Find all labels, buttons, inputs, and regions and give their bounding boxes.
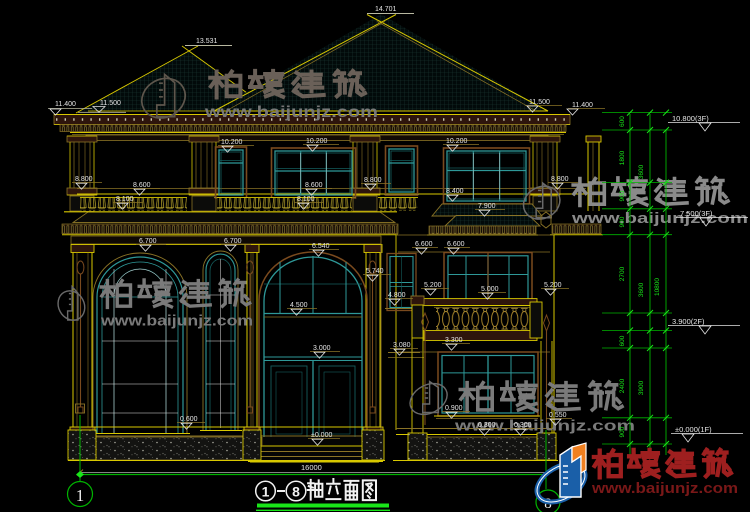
- svg-text:www.baijunjz.com: www.baijunjz.com: [591, 480, 738, 497]
- svg-text:900: 900: [619, 216, 626, 227]
- svg-text:11.400: 11.400: [55, 101, 76, 108]
- svg-text:900: 900: [619, 190, 626, 201]
- svg-text:8: 8: [292, 484, 300, 500]
- svg-text:8.600: 8.600: [305, 182, 323, 189]
- svg-text:2400: 2400: [619, 378, 626, 393]
- svg-text:5.200: 5.200: [544, 282, 562, 289]
- svg-text:13.531: 13.531: [196, 38, 218, 45]
- svg-text:6.600: 6.600: [447, 241, 465, 248]
- svg-text:600: 600: [619, 335, 626, 346]
- svg-text:600: 600: [619, 116, 626, 127]
- svg-text:8.600: 8.600: [133, 182, 151, 189]
- svg-text:3.300: 3.300: [445, 337, 463, 344]
- svg-text:0.300: 0.300: [478, 422, 496, 429]
- svg-text:www.baijunjz.com: www.baijunjz.com: [571, 210, 748, 227]
- svg-text:6.700: 6.700: [139, 238, 157, 245]
- svg-text:10.200: 10.200: [446, 138, 468, 145]
- svg-text:3.900(2F): 3.900(2F): [672, 317, 705, 326]
- svg-text:±0.000: ±0.000: [311, 432, 332, 439]
- svg-text:8.400: 8.400: [446, 188, 464, 195]
- svg-text:1800: 1800: [619, 150, 626, 165]
- svg-text:www.baijunjz.com: www.baijunjz.com: [100, 314, 253, 330]
- svg-text:1: 1: [262, 484, 270, 500]
- svg-text:7.500(3F): 7.500(3F): [680, 209, 713, 218]
- svg-text:10800: 10800: [654, 278, 661, 296]
- svg-text:1: 1: [76, 486, 85, 505]
- svg-text:6.540: 6.540: [312, 243, 330, 250]
- svg-text:0.300: 0.300: [514, 422, 532, 429]
- svg-text:www.baijunjz.com: www.baijunjz.com: [204, 104, 378, 121]
- svg-text:2700: 2700: [619, 266, 626, 281]
- svg-text:8.800: 8.800: [364, 177, 382, 184]
- svg-text:5.000: 5.000: [481, 286, 499, 293]
- svg-text:6.600: 6.600: [415, 241, 433, 248]
- svg-text:8.100: 8.100: [297, 196, 315, 203]
- svg-text:10.800(3F): 10.800(3F): [672, 114, 709, 123]
- svg-text:8.100: 8.100: [116, 196, 134, 203]
- svg-text:11.500: 11.500: [100, 100, 121, 107]
- svg-text:4.800: 4.800: [388, 292, 406, 299]
- svg-text:3900: 3900: [638, 380, 645, 395]
- svg-text:10.200: 10.200: [221, 139, 243, 146]
- svg-text:11.400: 11.400: [572, 102, 593, 109]
- svg-text:5.200: 5.200: [424, 282, 442, 289]
- svg-text:0.550: 0.550: [549, 412, 567, 419]
- svg-text:10.200: 10.200: [306, 138, 328, 145]
- svg-text:±0.000(1F): ±0.000(1F): [675, 425, 712, 434]
- svg-text:3.080: 3.080: [393, 342, 411, 349]
- svg-text:8.800: 8.800: [75, 176, 93, 183]
- svg-text:5.740: 5.740: [366, 268, 384, 275]
- svg-text:16000: 16000: [301, 463, 322, 472]
- svg-text:3600: 3600: [638, 164, 645, 179]
- svg-text:0.600: 0.600: [180, 416, 198, 423]
- svg-text:3.000: 3.000: [313, 345, 331, 352]
- svg-text:6.700: 6.700: [224, 238, 242, 245]
- svg-text:3600: 3600: [638, 282, 645, 297]
- svg-text:0.900: 0.900: [445, 405, 463, 412]
- svg-text:900: 900: [619, 426, 626, 437]
- svg-text:14.701: 14.701: [375, 6, 397, 13]
- svg-text:4.500: 4.500: [290, 302, 308, 309]
- svg-text:8.800: 8.800: [551, 176, 569, 183]
- svg-text:11.500: 11.500: [529, 99, 550, 106]
- svg-text:7.900: 7.900: [478, 203, 496, 210]
